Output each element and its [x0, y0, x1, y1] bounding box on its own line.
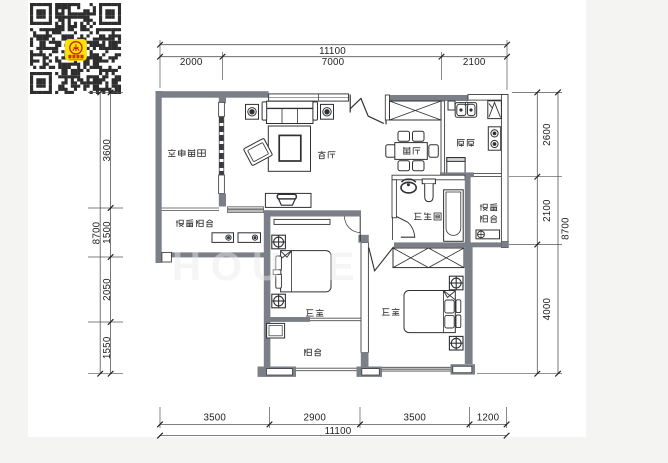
svg-text:2900: 2900 — [303, 413, 326, 424]
svg-text:2000: 2000 — [180, 57, 203, 68]
svg-text:3500: 3500 — [403, 413, 426, 424]
svg-text:4000: 4000 — [542, 297, 553, 320]
svg-text:1550: 1550 — [102, 336, 113, 359]
svg-text:2100: 2100 — [542, 199, 553, 222]
svg-text:1500: 1500 — [102, 221, 113, 244]
svg-text:11100: 11100 — [319, 46, 346, 57]
svg-text:3600: 3600 — [102, 139, 113, 162]
svg-text:8700: 8700 — [561, 217, 572, 240]
svg-text:8700: 8700 — [92, 221, 103, 244]
svg-text:1200: 1200 — [477, 413, 500, 424]
svg-text:2600: 2600 — [542, 123, 553, 146]
svg-text:2100: 2100 — [463, 57, 486, 68]
svg-text:7000: 7000 — [322, 57, 345, 68]
svg-text:3500: 3500 — [203, 413, 226, 424]
svg-text:2050: 2050 — [102, 278, 113, 301]
svg-text:11100: 11100 — [325, 426, 352, 437]
svg-text:HOUSE: HOUSE — [172, 245, 364, 289]
